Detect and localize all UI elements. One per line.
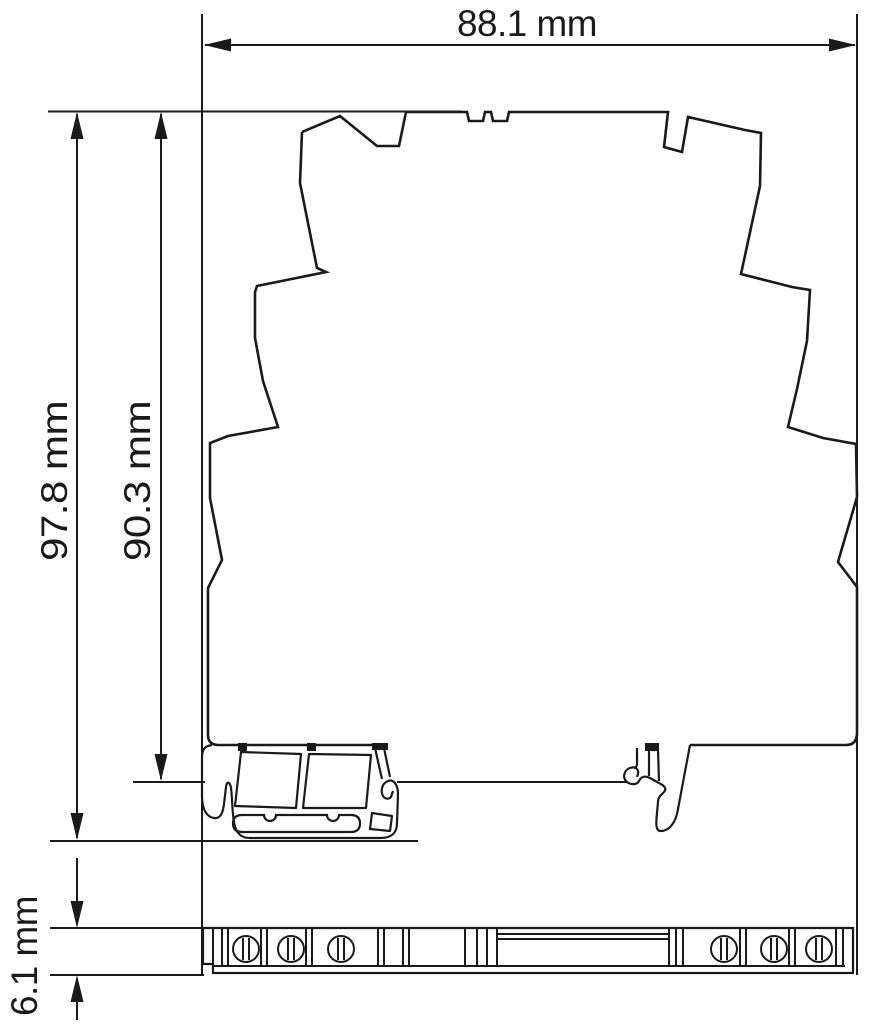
dimension-rail-depth: 6.1 mm xyxy=(4,858,84,1020)
terminal-strip xyxy=(203,928,853,973)
din-rail-foot-left xyxy=(202,743,398,838)
module-outline xyxy=(208,112,857,745)
dimension-width-label: 88.1 mm xyxy=(457,3,597,44)
arrow-up-icon xyxy=(71,112,84,139)
dimension-rail-height-label: 90.3 mm xyxy=(117,401,158,561)
extension-lines xyxy=(48,14,857,975)
arrow-down-icon xyxy=(155,754,168,781)
screw-head xyxy=(233,936,259,962)
dimension-total-height-label: 97.8 mm xyxy=(34,401,75,561)
arrow-right-icon xyxy=(829,39,856,52)
strip-center-slot xyxy=(497,934,669,939)
screw-head xyxy=(761,936,787,962)
dimension-rail-height: 90.3 mm xyxy=(117,112,168,781)
screw-head xyxy=(711,936,737,962)
drawing-svg: 88.1 mm 97.8 mm 90.3 mm 6.1 mm xyxy=(0,0,890,1024)
din-rail-latch-right xyxy=(624,743,690,831)
arrow-up-icon xyxy=(155,112,168,139)
dimensional-drawing-canvas: 88.1 mm 97.8 mm 90.3 mm 6.1 mm xyxy=(0,0,890,1024)
screw-head xyxy=(328,936,354,962)
arrow-up-icon xyxy=(71,975,84,1002)
screw-head xyxy=(278,936,304,962)
dimension-rail-depth-label: 6.1 mm xyxy=(4,896,45,1016)
screw-head xyxy=(806,936,832,962)
arrow-down-icon xyxy=(71,813,84,840)
dimension-total-height: 97.8 mm xyxy=(34,112,84,840)
arrow-down-icon xyxy=(71,901,84,928)
dimension-width: 88.1 mm xyxy=(204,3,856,52)
arrow-left-icon xyxy=(204,39,231,52)
